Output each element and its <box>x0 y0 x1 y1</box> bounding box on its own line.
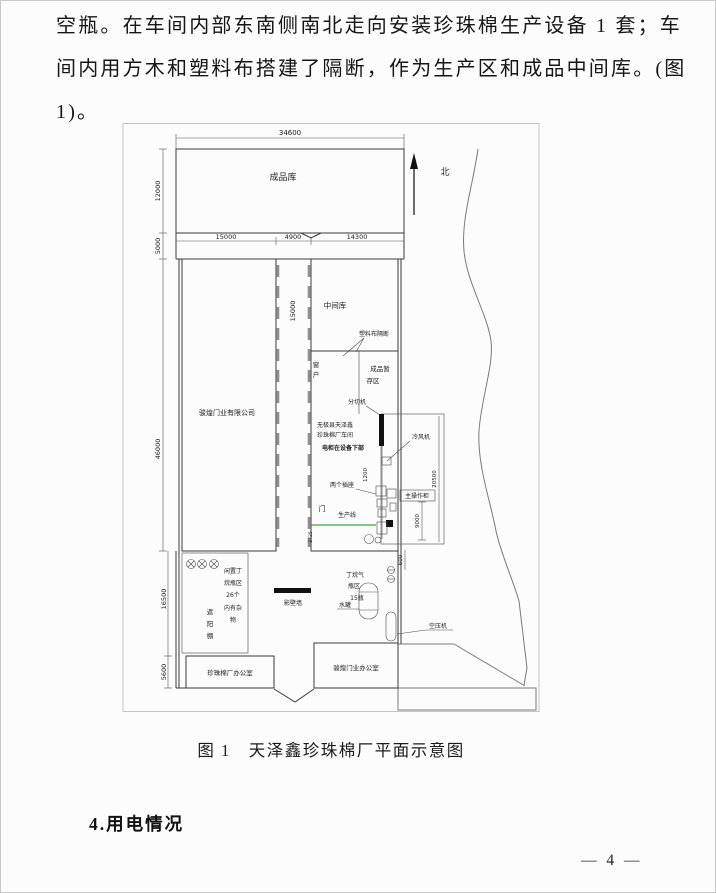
workshop-text-2: 珍珠棉厂车间 <box>317 431 353 439</box>
temp-storage-label-2: 存区 <box>367 376 381 385</box>
butane-area-text-3: 15瓶 <box>350 594 364 602</box>
svg-text:46000: 46000 <box>154 439 162 460</box>
small-device-symbol <box>390 503 396 511</box>
idle-area-text-5: 物 <box>230 616 236 624</box>
dim-20500: 20500 <box>432 416 439 542</box>
green-shed-char-1: 遮 <box>207 607 214 616</box>
north-label: 北 <box>440 167 449 178</box>
section-heading: 4.用电情况 <box>89 811 184 836</box>
main-gate-notch <box>274 689 314 702</box>
finished-goods-warehouse: 成品库 <box>176 149 404 238</box>
door-company-label: 骏煌门业有限公司 <box>199 408 255 417</box>
dim-3725: 3725 <box>308 531 314 543</box>
temp-storage-label-1: 成品暂 <box>370 364 390 373</box>
slitter-label: 分切机 <box>348 398 366 406</box>
paragraph-line: 间内用方木和塑料布搭建了隔断，作为生产区和成品中间库。(图 <box>56 52 668 81</box>
south-road-strip <box>398 688 536 710</box>
water-tank-label: 水罐 <box>339 601 351 609</box>
main-cabinet-label: 主操作柜 <box>405 492 429 500</box>
dim-15000-top: 15000 <box>216 233 237 241</box>
slitter-machine-symbol <box>379 414 384 446</box>
green-shed-char-3: 棚 <box>207 631 214 640</box>
pearl-office-label: 珍珠棉厂办公室 <box>207 668 253 677</box>
south-yard: 闲置丁 烷瓶区 26个 内有杂 物 遮 阳 棚 影壁墙 丁烷气 瓶区 15瓶 水… <box>176 551 453 702</box>
cooler-label: 冷风机 <box>412 433 430 441</box>
boundary-diagonal <box>454 644 525 686</box>
plastic-partition-label: 塑料布隔断 <box>359 330 389 338</box>
window-label-char1: 窗 <box>313 360 320 369</box>
finished-goods-warehouse-label: 成品库 <box>269 171 296 183</box>
dim-1200: 1200 <box>363 468 369 482</box>
svg-text:600: 600 <box>398 554 404 565</box>
dim-15000-mid: 15000 <box>289 301 297 322</box>
air-compressor-label: 空压机 <box>429 622 447 630</box>
idle-area-text-3: 26个 <box>226 592 240 599</box>
idle-area-text-2: 烷瓶区 <box>224 579 242 587</box>
production-line-label: 生产线 <box>338 511 356 519</box>
dim-4900: 4900 <box>285 233 302 241</box>
winder-symbol <box>365 535 374 544</box>
dim-14300: 14300 <box>347 233 368 241</box>
air-compressor-symbol <box>386 612 396 641</box>
svg-text:5000: 5000 <box>154 238 162 255</box>
page-number: — 4 — <box>581 852 643 870</box>
figure-caption-number: 图 1 <box>197 741 230 760</box>
north-arrow-icon <box>410 153 418 215</box>
dim-34600: 34600 <box>176 129 404 149</box>
two-sockets-label: 两个插座 <box>330 481 354 489</box>
cabinet-box-symbol <box>387 489 396 498</box>
dim-16500: 16500 <box>160 551 172 656</box>
figure-caption: 图 1天泽鑫珍珠棉厂平面示意图 <box>121 737 541 761</box>
idle-area-text-1: 闲置丁 <box>224 567 242 575</box>
workshop-text-1: 无极县天泽鑫 <box>317 421 353 429</box>
paragraph-line: 1)。 <box>56 95 668 124</box>
figure-frame <box>123 124 539 712</box>
dim-5000: 5000 <box>154 233 167 259</box>
butane-area-text-1: 丁烷气 <box>346 571 364 579</box>
dim-row: 15000 4900 14300 <box>176 233 404 259</box>
svg-text:12000: 12000 <box>154 181 162 202</box>
dim-46000: 46000 <box>154 259 167 551</box>
door-label: 门 <box>319 504 326 513</box>
svg-text:16500: 16500 <box>160 589 168 610</box>
door-company-hall: 骏煌门业有限公司 <box>179 259 276 551</box>
site-boundary-line <box>464 149 527 685</box>
dim-12000: 12000 <box>154 149 167 233</box>
gas-bottle-symbols <box>387 567 395 583</box>
cooler-connection-symbol <box>382 457 391 465</box>
svg-text:5600: 5600 <box>160 664 168 681</box>
dim-5600: 5600 <box>160 656 172 688</box>
idle-area-text-4: 内有杂 <box>224 604 242 612</box>
green-shed-char-2: 阳 <box>207 619 214 628</box>
butane-area-text-2: 瓶区 <box>348 582 360 590</box>
window-label-char2: 户 <box>313 370 320 379</box>
figure-caption-title: 天泽鑫珍珠棉厂平面示意图 <box>249 741 465 760</box>
factory-floorplan-figure: 34600 成品库 12000 5000 46000 1650 <box>121 123 541 715</box>
door-office-label: 骏煌门业办公室 <box>333 663 379 672</box>
idle-bottle-symbols <box>187 560 219 569</box>
mid-warehouse-label: 中间库 <box>324 300 347 310</box>
document-page: 空瓶。在车间内部东南侧南北走向安装珍珠棉生产设备 1 套；车 间内用方木和塑料布… <box>0 0 716 893</box>
paragraph-line: 空瓶。在车间内部东南侧南北走向安装珍珠棉生产设备 1 套；车 <box>56 9 668 38</box>
screen-wall-label: 影壁墙 <box>284 599 302 607</box>
svg-text:34600: 34600 <box>279 129 301 137</box>
floorplan-svg: 34600 成品库 12000 5000 46000 1650 <box>121 123 541 715</box>
svg-text:9000: 9000 <box>415 514 421 528</box>
workshop-text-3: 电柜在设备下部 <box>322 444 364 452</box>
screen-wall-symbol <box>274 588 311 593</box>
dim-9000: 9000 <box>415 502 426 540</box>
svg-text:20500: 20500 <box>432 470 438 488</box>
winder-symbol <box>375 537 381 543</box>
